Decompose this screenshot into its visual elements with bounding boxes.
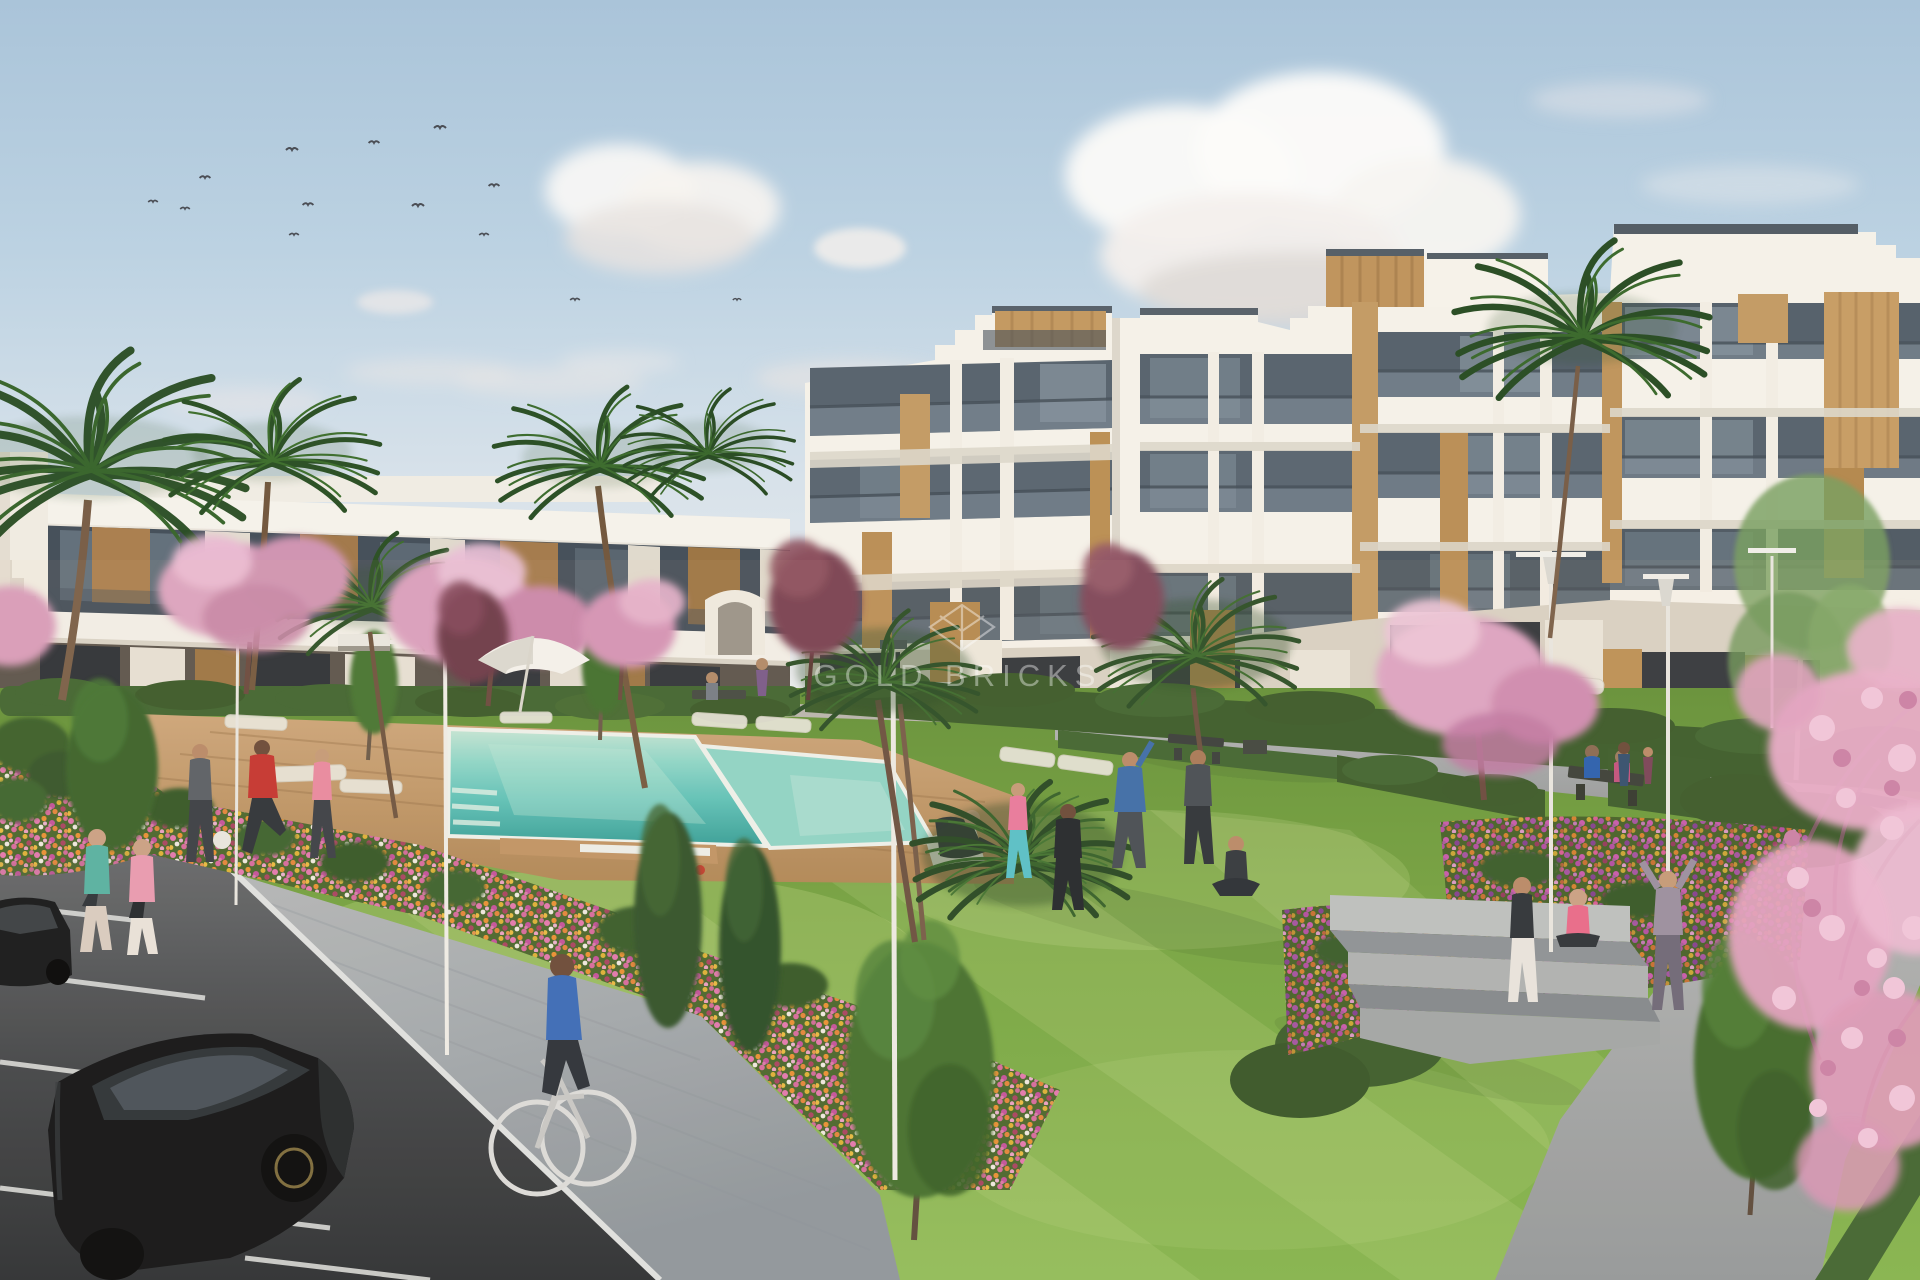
svg-text:GOLD BRICKS: GOLD BRICKS	[814, 658, 1103, 693]
